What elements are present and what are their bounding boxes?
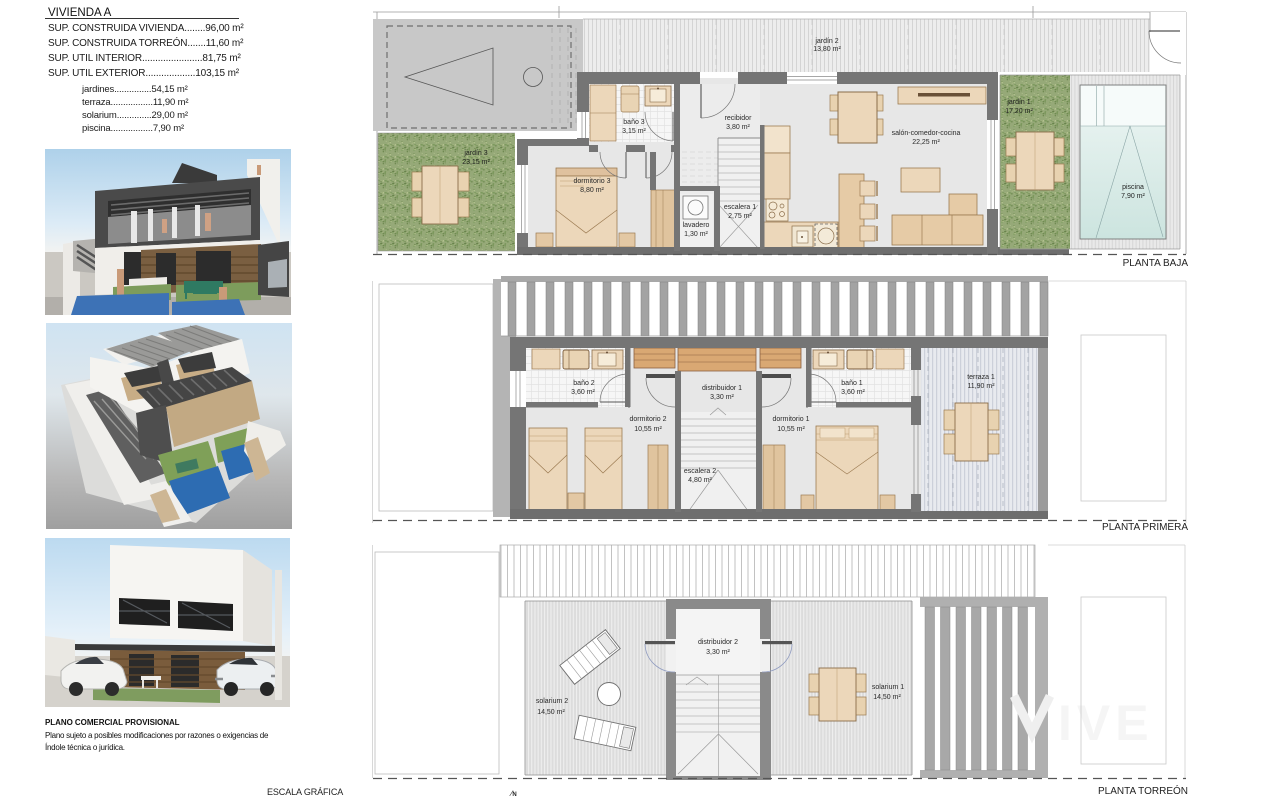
svg-text:dormitorio 3: dormitorio 3 [574, 178, 611, 185]
svg-text:jardín 3: jardín 3 [463, 150, 487, 157]
svg-text:10,55 m²: 10,55 m² [777, 426, 805, 433]
svg-text:3,30 m²: 3,30 m² [706, 649, 730, 656]
svg-text:3,15 m²: 3,15 m² [622, 128, 646, 135]
svg-text:jardín 1: jardín 1 [1006, 99, 1030, 106]
svg-text:escalera 2: escalera 2 [684, 468, 716, 475]
svg-text:17,20 m²: 17,20 m² [1005, 108, 1033, 115]
svg-text:3,30 m²: 3,30 m² [710, 394, 734, 401]
svg-text:14,50 m²: 14,50 m² [873, 694, 901, 701]
svg-text:3,60 m²: 3,60 m² [571, 389, 595, 396]
svg-text:3,60 m²: 3,60 m² [841, 389, 865, 396]
svg-text:23,15 m²: 23,15 m² [462, 159, 490, 166]
svg-text:PLANTA BAJA: PLANTA BAJA [1123, 258, 1189, 269]
svg-text:22,25 m²: 22,25 m² [912, 139, 940, 146]
svg-text:distribuidor 2: distribuidor 2 [698, 639, 738, 646]
svg-text:13,80 m²: 13,80 m² [813, 46, 841, 53]
svg-text:4,80 m²: 4,80 m² [688, 477, 712, 484]
svg-text:lavadero: lavadero [683, 222, 710, 229]
svg-text:jardín 2: jardín 2 [814, 38, 838, 45]
svg-text:14,50 m²: 14,50 m² [537, 709, 565, 716]
svg-text:solarium 2: solarium 2 [536, 698, 568, 705]
svg-text:3,80 m²: 3,80 m² [726, 124, 750, 131]
svg-text:baño 3: baño 3 [623, 119, 645, 126]
svg-text:escalera 1: escalera 1 [724, 204, 756, 211]
svg-text:1,30 m²: 1,30 m² [684, 231, 708, 238]
svg-text:8,80 m²: 8,80 m² [580, 187, 604, 194]
svg-text:11,90 m²: 11,90 m² [967, 383, 995, 390]
svg-text:dormitorio 2: dormitorio 2 [630, 416, 667, 423]
svg-text:baño 2: baño 2 [573, 380, 595, 387]
svg-text:recibidor: recibidor [725, 115, 753, 122]
svg-text:distribuidor 1: distribuidor 1 [702, 385, 742, 392]
svg-text:solarium 1: solarium 1 [872, 684, 904, 691]
svg-text:7,90 m²: 7,90 m² [1121, 193, 1145, 200]
svg-text:salón-comedor-cocina: salón-comedor-cocina [892, 130, 961, 137]
svg-text:dormitorio 1: dormitorio 1 [773, 416, 810, 423]
svg-text:10,55 m²: 10,55 m² [634, 426, 662, 433]
svg-text:IVE: IVE [1058, 695, 1154, 751]
svg-text:piscina: piscina [1122, 184, 1144, 191]
svg-text:PLANTA PRIMERA: PLANTA PRIMERA [1102, 522, 1188, 533]
svg-text:PLANTA TORREÓN: PLANTA TORREÓN [1098, 784, 1188, 797]
svg-text:terraza 1: terraza 1 [967, 374, 995, 381]
svg-text:2,75 m²: 2,75 m² [728, 213, 752, 220]
svg-text:baño 1: baño 1 [841, 380, 863, 387]
